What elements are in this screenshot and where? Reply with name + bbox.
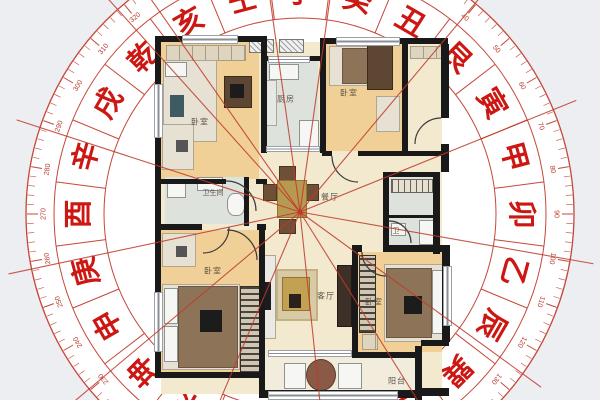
tv	[230, 84, 244, 98]
room-label-bedroom-bl: 卧室	[204, 266, 222, 277]
window	[336, 37, 400, 46]
pillow	[165, 62, 187, 77]
wardrobe	[240, 286, 260, 374]
dining-chair	[263, 184, 277, 201]
bed-throw	[200, 310, 222, 332]
wall-segment	[322, 151, 332, 156]
wall-segment	[386, 245, 450, 252]
kitchen-pass-window	[266, 146, 320, 152]
pillow	[164, 326, 178, 362]
desk	[376, 96, 400, 132]
dining-table	[277, 180, 307, 218]
wall-segment	[433, 172, 440, 254]
bed-throw	[404, 296, 422, 314]
wall-segment	[441, 144, 449, 172]
fengshui-floorplan-image: 1020304050607080901001101201301401501601…	[0, 0, 600, 400]
pillow	[164, 288, 178, 324]
dining-chair	[279, 166, 296, 181]
wall-segment	[352, 352, 422, 358]
wall-segment	[358, 151, 448, 156]
balcony-chair	[284, 363, 306, 389]
dining-chair	[305, 184, 319, 201]
floor-plan: 卧室 厨房 卧室 卫生间 餐厅 卫 卧室 客厅 卧室 阳台	[0, 0, 600, 400]
window	[443, 266, 452, 326]
kitchen-sink	[269, 64, 299, 80]
wall-segment	[389, 172, 439, 177]
wall-segment	[383, 172, 389, 252]
tv	[264, 282, 271, 310]
wall-segment	[421, 340, 449, 346]
room-label-dining: 餐厅	[321, 192, 339, 203]
balcony-slider-door	[268, 350, 352, 357]
room-label-bathroom-main: 卫生间	[203, 188, 224, 198]
duct-shaft	[279, 39, 304, 53]
toilet	[227, 193, 245, 216]
wall-segment	[155, 372, 265, 378]
wardrobe-dark	[367, 44, 393, 90]
shoe-cabinet	[410, 46, 442, 59]
wall-segment	[352, 252, 358, 352]
wardrobe	[359, 255, 376, 333]
sofa	[337, 265, 352, 327]
wall-segment	[259, 230, 265, 378]
storage-shelf	[391, 179, 433, 193]
wall-segment	[441, 44, 449, 118]
chair	[176, 140, 188, 152]
room-label-bedroom-tl: 卧室	[191, 117, 209, 128]
balcony-chair	[338, 363, 362, 389]
wall-segment	[352, 245, 362, 252]
table-decor	[289, 294, 301, 308]
wall-segment	[402, 44, 408, 153]
balcony-table	[306, 359, 336, 391]
fridge	[299, 120, 319, 148]
wardrobe	[166, 45, 246, 61]
wall-segment	[155, 224, 202, 230]
wall-segment	[256, 179, 267, 184]
bed-runner	[170, 95, 184, 117]
wall-segment	[415, 388, 449, 396]
window	[154, 84, 163, 138]
window	[268, 56, 310, 63]
window	[154, 292, 163, 352]
room-label-bedroom-tr: 卧室	[340, 88, 358, 99]
room-label-balcony: 阳台	[388, 376, 406, 387]
nightstand	[362, 334, 378, 350]
wall-segment	[320, 38, 326, 153]
wall-segment	[389, 215, 434, 218]
room-label-kitchen: 厨房	[277, 94, 295, 105]
chair	[176, 246, 187, 257]
wall-segment	[261, 36, 267, 153]
room-label-bathroom-small: 卫	[393, 226, 400, 236]
wall-segment	[155, 179, 226, 184]
dining-chair	[279, 219, 296, 234]
room-label-bedroom-br: 卧室	[365, 297, 383, 308]
window	[182, 35, 238, 44]
bed-blanket	[342, 48, 368, 84]
wall-segment	[244, 177, 249, 226]
window	[268, 391, 398, 400]
room-label-living: 客厅	[317, 291, 335, 302]
